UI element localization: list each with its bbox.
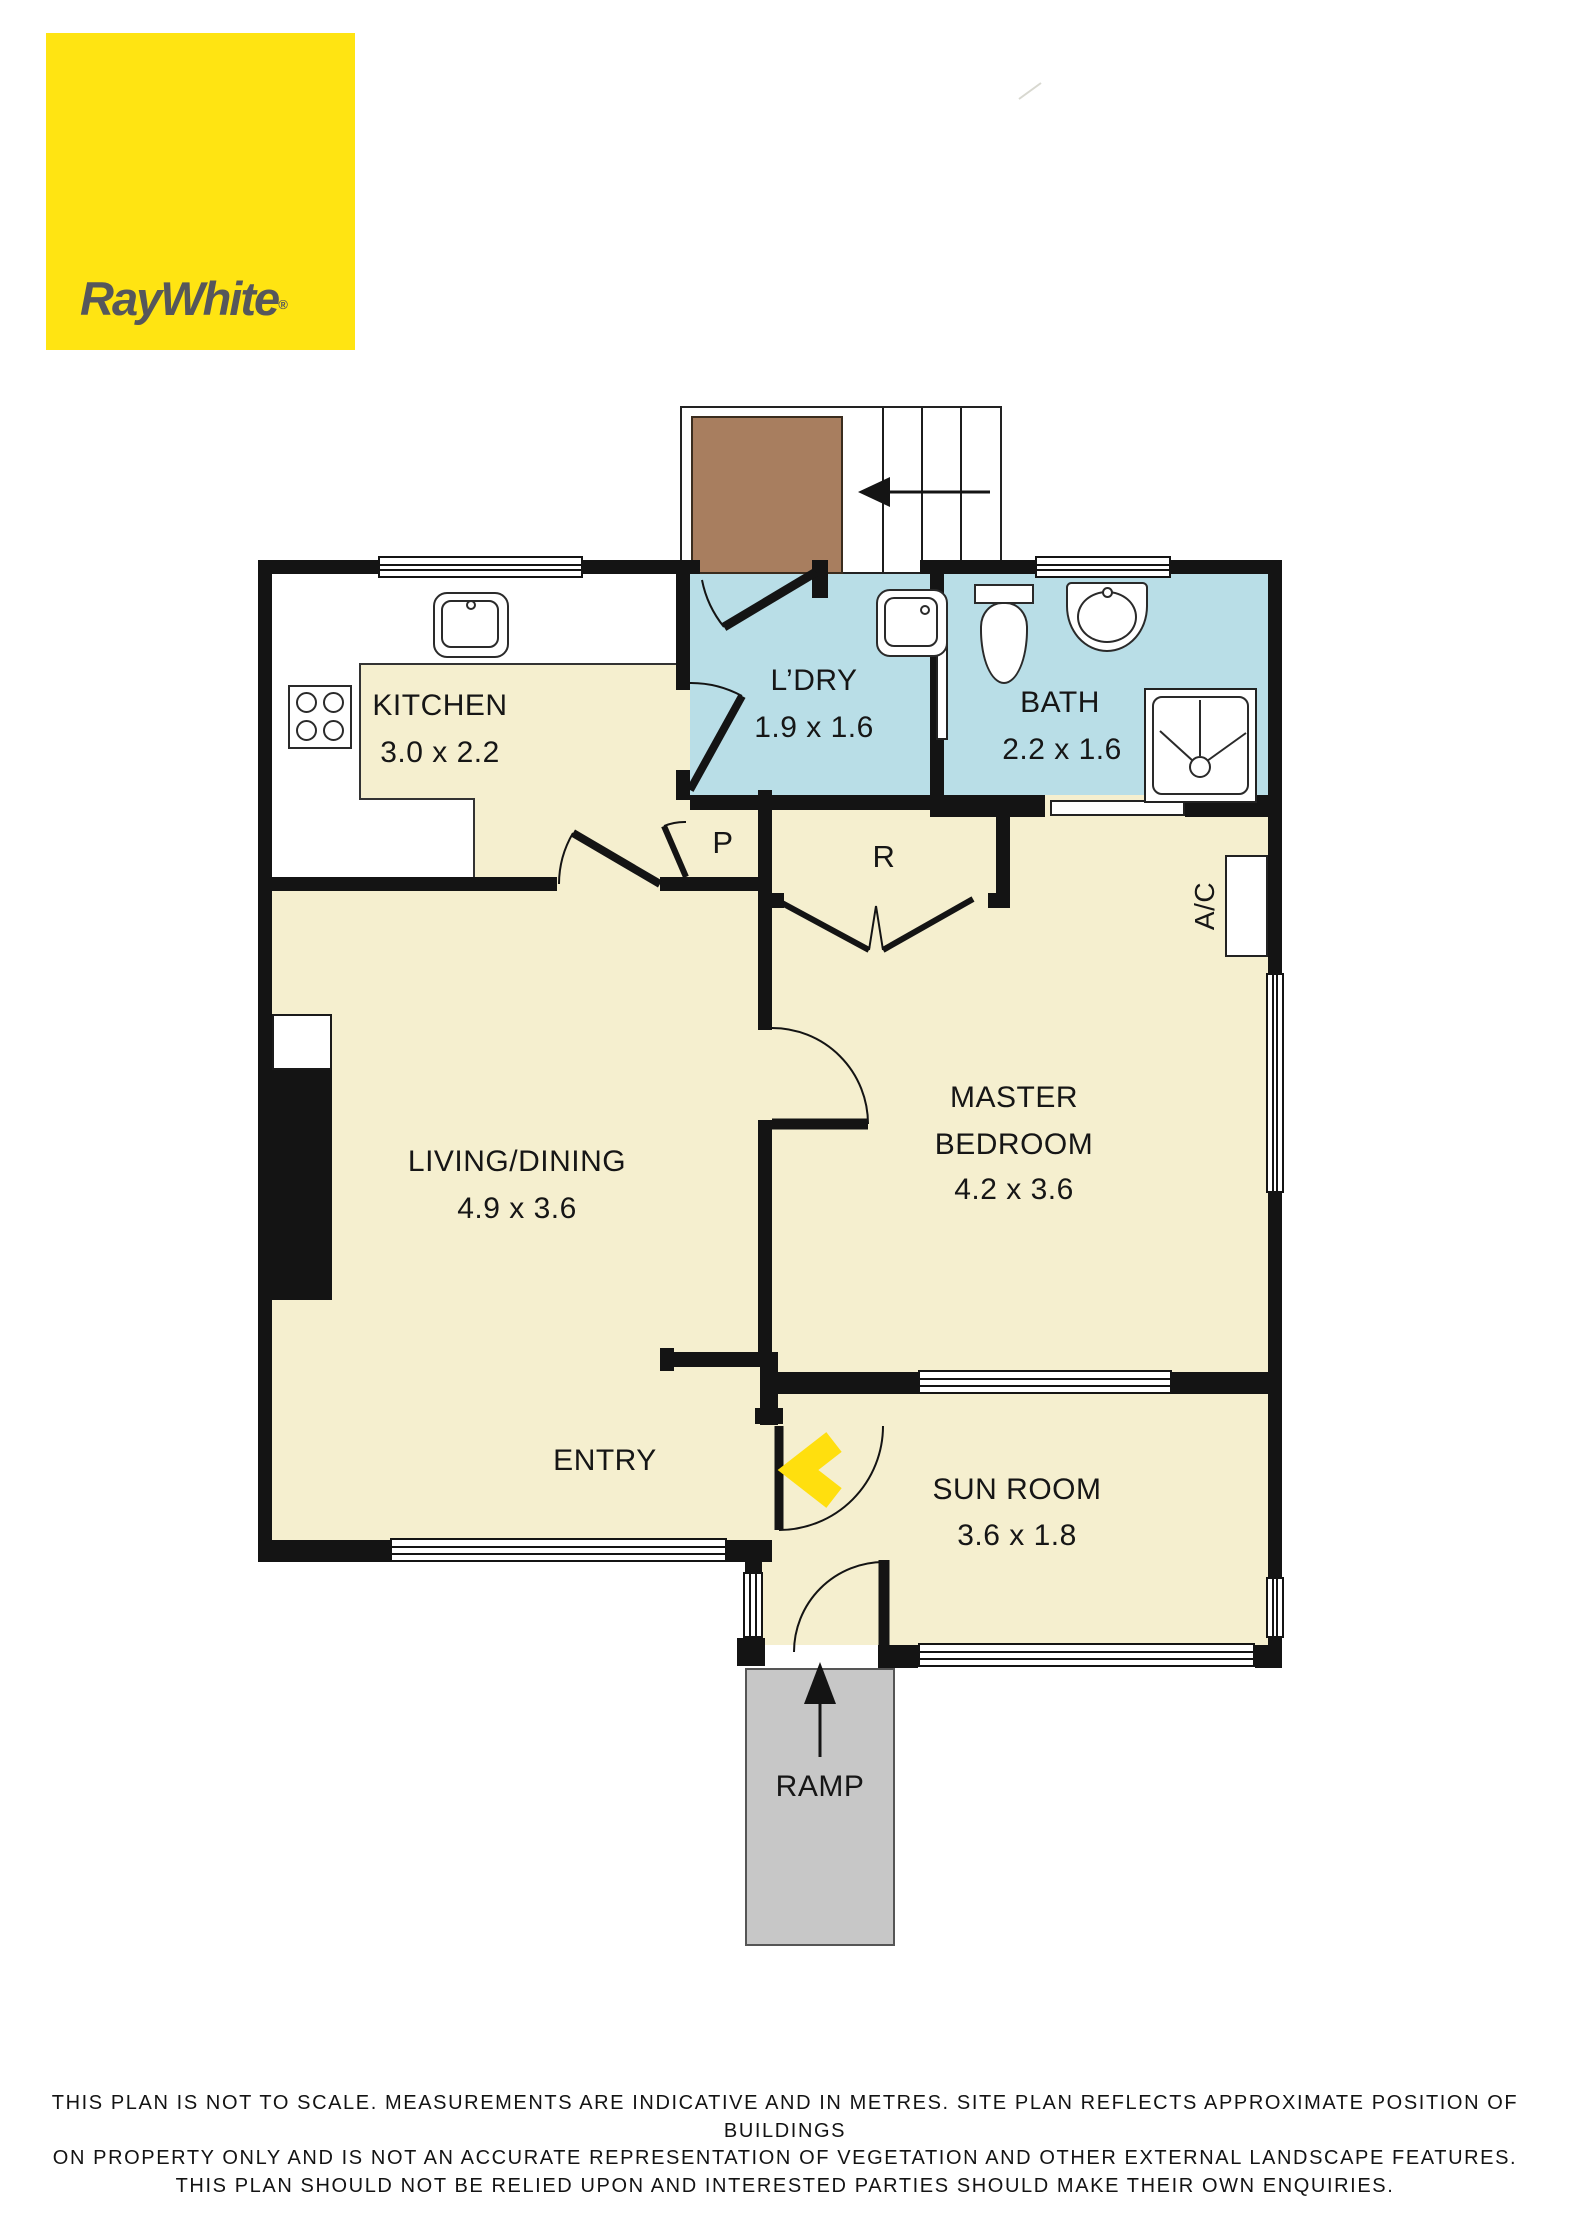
kitchen-counter-corner	[359, 798, 473, 877]
room-dims-living: 4.9 x 3.6	[457, 1192, 577, 1226]
room-label-sunroom: SUN ROOM	[933, 1473, 1102, 1507]
room-label-kitchen: KITCHEN	[372, 689, 507, 723]
master-side-window	[1266, 973, 1284, 1193]
bath-window	[1035, 556, 1171, 578]
kitchen-sink	[433, 592, 509, 658]
marker-pantry: P	[712, 825, 733, 861]
disclaimer-line-2: ON PROPERTY ONLY AND IS NOT AN ACCURATE …	[0, 2145, 1570, 2173]
sunroom-bottom-window	[918, 1643, 1255, 1667]
kitchen-window	[378, 556, 583, 578]
room-label-laundry: L’DRY	[771, 664, 858, 698]
disclaimer: THIS PLAN IS NOT TO SCALE. MEASUREMENTS …	[0, 2090, 1570, 2200]
registered-mark: ®	[278, 297, 288, 312]
ramp	[745, 1668, 895, 1946]
room-dims-sunroom: 3.6 x 1.8	[957, 1519, 1077, 1553]
stove	[288, 685, 352, 749]
sunroom-entry-floor	[745, 1540, 1268, 1645]
stair-landing	[691, 416, 843, 574]
living-window	[390, 1538, 727, 1562]
disclaimer-line-1: THIS PLAN IS NOT TO SCALE. MEASUREMENTS …	[0, 2090, 1570, 2145]
raywhite-logo: RayWhite®	[46, 33, 355, 350]
room-label-living: LIVING/DINING	[408, 1145, 626, 1179]
room-label-entry: ENTRY	[553, 1444, 657, 1478]
corner-mark	[1019, 83, 1041, 99]
room-dims-bath: 2.2 x 1.6	[1002, 733, 1122, 767]
laundry-tub	[876, 589, 948, 657]
marker-ac: A/C	[1189, 882, 1221, 930]
room-label-master-2: BEDROOM	[935, 1128, 1094, 1162]
ac-unit	[1225, 855, 1268, 957]
room-label-bath: BATH	[1020, 686, 1100, 720]
fireplace-block	[272, 1070, 332, 1300]
disclaimer-line-3: THIS PLAN SHOULD NOT BE RELIED UPON AND …	[0, 2173, 1570, 2201]
room-dims-kitchen: 3.0 x 2.2	[380, 736, 500, 770]
marker-robe: R	[873, 839, 896, 875]
room-dims-master: 4.2 x 3.6	[954, 1173, 1074, 1207]
toilet	[974, 584, 1034, 604]
entry-side-window	[743, 1572, 763, 1638]
fireplace-niche	[272, 1014, 332, 1070]
master-sunroom-window	[918, 1370, 1172, 1394]
room-label-ramp: RAMP	[776, 1770, 865, 1804]
floorplan-page: RayWhite®	[0, 0, 1570, 2220]
room-dims-laundry: 1.9 x 1.6	[754, 711, 874, 745]
sunroom-side-window	[1266, 1577, 1284, 1638]
raywhite-logo-text: RayWhite®	[80, 271, 288, 326]
room-label-master-1: MASTER	[950, 1081, 1078, 1115]
shower	[1144, 688, 1257, 803]
